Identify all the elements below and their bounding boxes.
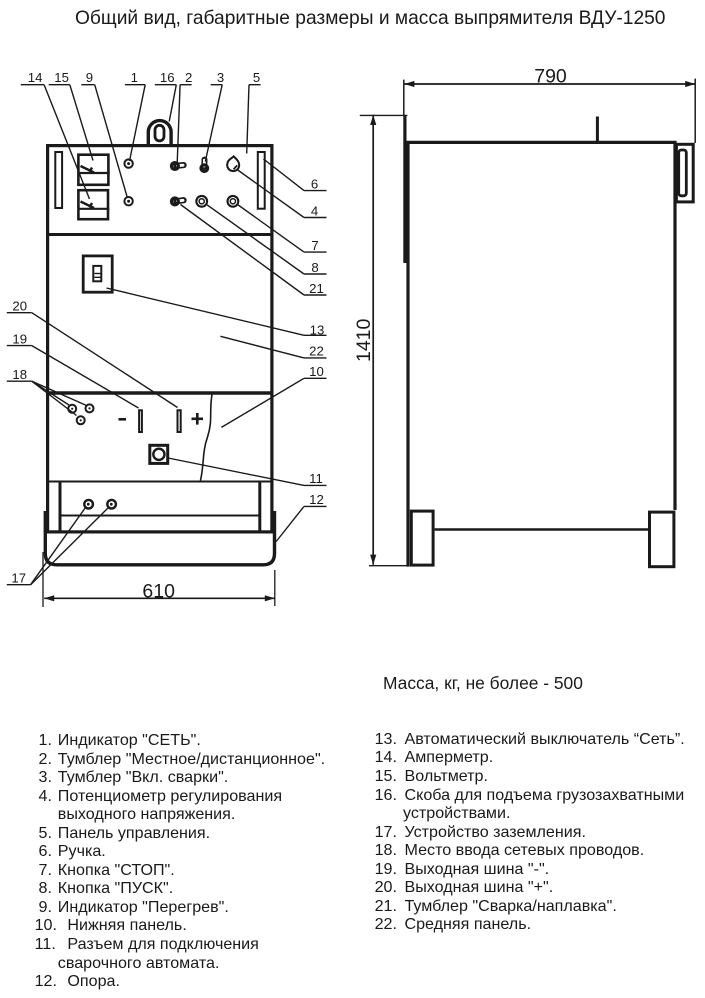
svg-text:17: 17	[11, 570, 26, 585]
svg-text:4: 4	[311, 203, 318, 218]
svg-text:15: 15	[54, 70, 69, 85]
svg-text:13: 13	[310, 322, 325, 337]
svg-text:14: 14	[28, 70, 43, 85]
svg-text:21: 21	[309, 281, 324, 296]
svg-text:8: 8	[311, 260, 318, 275]
svg-text:6: 6	[311, 176, 318, 191]
svg-text:18: 18	[12, 367, 27, 382]
svg-text:12: 12	[309, 492, 324, 507]
svg-text:22: 22	[309, 344, 324, 359]
svg-text:610: 610	[142, 580, 175, 602]
svg-text:7: 7	[311, 238, 318, 253]
svg-text:20: 20	[12, 298, 27, 313]
svg-text:16: 16	[160, 70, 175, 85]
svg-text:9: 9	[86, 70, 93, 85]
svg-text:10: 10	[309, 364, 324, 379]
svg-text:1: 1	[131, 70, 138, 85]
svg-text:3: 3	[217, 70, 224, 85]
svg-text:1410: 1410	[353, 318, 375, 362]
svg-text:790: 790	[534, 65, 567, 87]
svg-text:5: 5	[253, 70, 260, 85]
svg-text:11: 11	[309, 471, 323, 486]
svg-text:2: 2	[185, 70, 192, 85]
svg-text:19: 19	[12, 331, 27, 346]
